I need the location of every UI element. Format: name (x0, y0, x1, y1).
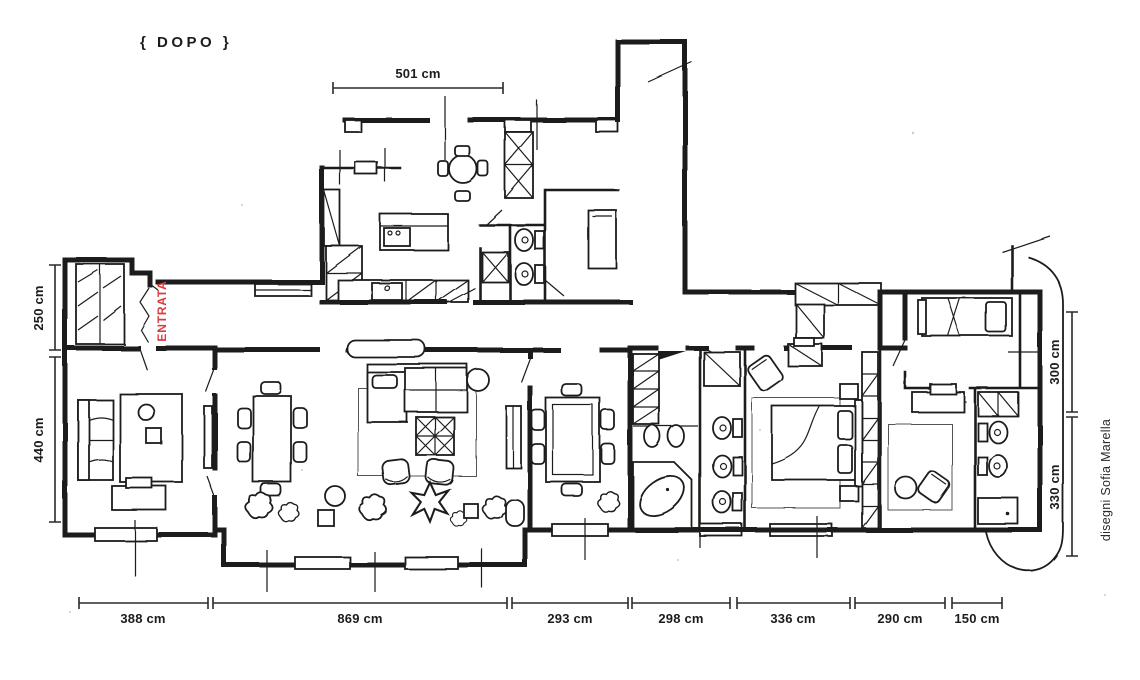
corridor-window (795, 283, 881, 305)
wc-bidet (515, 263, 544, 285)
utility-room (545, 210, 616, 296)
bathroom-second (700, 348, 745, 536)
boiler (588, 210, 616, 268)
kitchen-radiator (355, 162, 377, 174)
desk-chair (917, 469, 952, 504)
floor-plan-drawing: 501 cm 250 cm 440 cm 300 cm 330 cm 388 c… (0, 0, 1140, 680)
credit-label: disegni Sofia Marella (1099, 419, 1113, 541)
kitchen-counter (326, 246, 468, 302)
pouf (895, 477, 917, 499)
ensuite-wc (978, 455, 1007, 477)
dimension-bottom: 388 cm 869 cm 293 cm 298 cm 336 cm 290 c… (79, 597, 1002, 626)
side-table (467, 369, 489, 391)
entry-door-leaf (140, 288, 149, 342)
dim-left-upper-label: 250 cm (31, 285, 46, 330)
study-radiator (204, 406, 212, 468)
dim-bottom-2-label: 869 cm (337, 611, 382, 626)
dimension-top: 501 cm (333, 66, 503, 94)
wc-toilet (515, 229, 544, 251)
single-bed (922, 298, 1012, 336)
wc-small (480, 190, 618, 302)
dim-bottom-7-label: 150 cm (954, 611, 999, 626)
dim-bottom-3-label: 293 cm (547, 611, 592, 626)
kitchen-island (380, 214, 448, 250)
dim-bottom-6-label: 290 cm (877, 611, 922, 626)
entrance-label: ENTRATA (155, 280, 169, 341)
bedroom-top-closet (788, 338, 822, 366)
bathroom-main (632, 348, 700, 530)
floor-plan-page: 501 cm 250 cm 440 cm 300 cm 330 cm 388 c… (0, 0, 1140, 680)
bedroom-single (893, 295, 1040, 402)
dining-plant (598, 492, 620, 512)
dining-table (532, 384, 615, 496)
plants (245, 482, 524, 526)
bath-closet (633, 354, 659, 424)
washing-machine (482, 252, 508, 282)
study-room (65, 348, 215, 576)
double-bed (772, 400, 862, 486)
bath-sinks (644, 425, 684, 447)
dim-bottom-1-label: 388 cm (120, 611, 165, 626)
bath2-wc (713, 455, 742, 477)
ensuite-sink (978, 421, 1007, 443)
dining-table-living (238, 382, 307, 496)
nightstand-1 (840, 384, 858, 399)
page-title: { DOPO } (140, 34, 232, 51)
bay-window-1 (295, 557, 350, 569)
study-table (120, 394, 182, 482)
dim-right-lower-label: 330 cm (1047, 464, 1062, 509)
bathtub (632, 462, 692, 528)
bedroom-armchair (746, 353, 785, 392)
kitchen (322, 96, 630, 304)
bath2-sink (713, 417, 742, 439)
single-bed-shelf (918, 300, 926, 334)
pattern-rug (416, 417, 454, 455)
nightstand-2 (840, 486, 858, 501)
kitchen-closet (505, 132, 533, 198)
apartment-plan (65, 42, 1063, 592)
dimension-left: 250 cm 440 cm (31, 265, 61, 522)
dim-top-label: 501 cm (395, 66, 440, 81)
shower-tray (978, 498, 1018, 524)
entry-hall (65, 260, 215, 370)
dim-bottom-5-label: 336 cm (770, 611, 815, 626)
dim-left-lower-label: 440 cm (31, 417, 46, 462)
dim-bottom-4-label: 298 cm (658, 611, 703, 626)
study-sofa (78, 400, 113, 480)
dim-right-upper-label: 300 cm (1047, 339, 1062, 384)
armchair-1 (382, 459, 411, 486)
ensuite-cabinet (978, 392, 1018, 416)
bath2-bidet (713, 491, 742, 513)
hallway (158, 282, 322, 296)
extension (618, 42, 692, 292)
armchair-2 (425, 459, 454, 486)
sofa (367, 364, 467, 422)
dining-window-sill (552, 524, 608, 536)
bedroom-wardrobe (862, 352, 878, 528)
study-window-sill (95, 528, 157, 541)
bath-door-leaf (658, 351, 686, 360)
bedroom-secondary (888, 384, 975, 530)
console-sideboard (347, 340, 425, 357)
bay-window-2 (405, 557, 458, 569)
